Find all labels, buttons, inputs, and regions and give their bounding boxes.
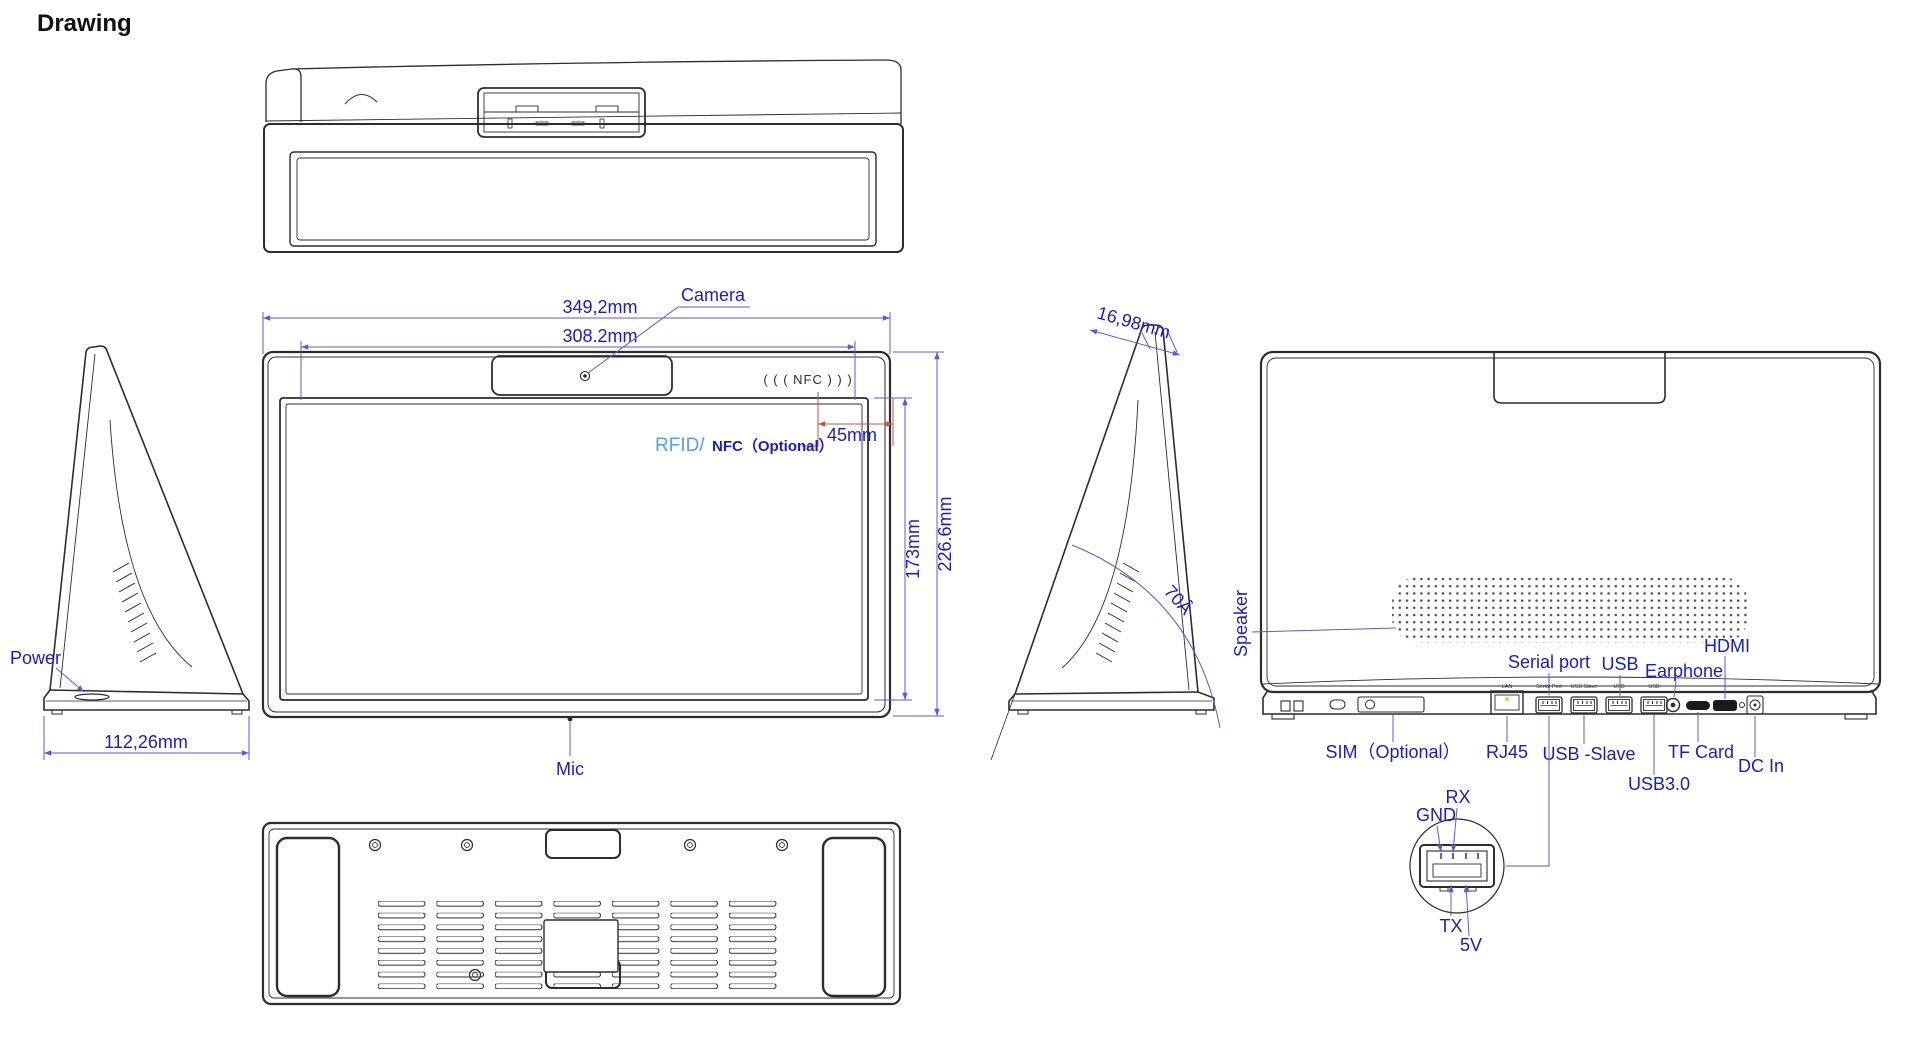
- dim-base-depth: 112,26mm: [44, 716, 249, 760]
- foot-pad-left: [277, 838, 339, 996]
- cable-bump: [345, 94, 377, 104]
- tx-label: TX: [1439, 916, 1462, 936]
- thickness-label: 16,98mm: [1095, 303, 1173, 343]
- svg-text:173mm: 173mm: [903, 519, 923, 579]
- power-label: Power: [10, 648, 61, 668]
- back-bottom-curve: [1263, 677, 1878, 684]
- right-stand-curve: [1062, 400, 1138, 668]
- mount-hole-1: [1281, 701, 1290, 711]
- left-inner-line: [60, 354, 95, 688]
- printed-usb-slave: USB Slave: [1571, 684, 1598, 690]
- serial-pin-detail: RX GND TX 5V: [1410, 787, 1504, 955]
- front-view: ( ( ( NFC ) ) ) 349,2mm 308.2mm Camera: [263, 285, 955, 779]
- nfc-mark: ( ( ( NFC ) ) ): [763, 372, 852, 387]
- speaker-label: Speaker: [1231, 590, 1251, 657]
- right-front-edge: [1163, 330, 1198, 692]
- detail-circle: [1410, 819, 1504, 913]
- svg-text:308.2mm: 308.2mm: [562, 326, 637, 346]
- tf-card-label: TF Card: [1668, 742, 1734, 762]
- stand-back: [1494, 353, 1665, 403]
- front-outline-inner: [268, 357, 885, 712]
- earphone-label: Earphone: [1645, 661, 1723, 681]
- mic-callout: Mic: [556, 722, 584, 779]
- bottom-view: [263, 823, 900, 1004]
- right-back-edge: [1015, 325, 1163, 694]
- dc-in-label: DC In: [1738, 756, 1784, 776]
- usb-slave-port: [1571, 697, 1597, 713]
- right-side-view: 16,98mm 70Â: [991, 303, 1220, 760]
- serial-port-label: Serial port: [1508, 652, 1590, 672]
- sim-slot: [1358, 697, 1424, 712]
- port-strip: [1263, 690, 1876, 714]
- serial-connector: [1420, 845, 1494, 891]
- rj45-port: [1491, 691, 1523, 714]
- nfc-offset-label: 45mm: [827, 425, 877, 445]
- handle-slot-top: [546, 830, 620, 858]
- reset-hole: [1740, 703, 1745, 708]
- power-button: [75, 694, 109, 700]
- usb3-port: [1641, 697, 1667, 713]
- tf-card-slot: [1686, 701, 1710, 710]
- hdmi-port: [1713, 700, 1737, 711]
- dim-screen-height: 173mm: [874, 398, 923, 700]
- front-outline: [263, 352, 890, 717]
- svg-text:226.6mm: 226.6mm: [935, 496, 955, 571]
- printed-lan: LAN: [1502, 684, 1513, 690]
- mount-hole-2: [1294, 701, 1303, 711]
- tilt-angle: 70Â: [1072, 545, 1220, 728]
- foot-pad-right: [823, 838, 885, 996]
- angle-extension-line: [991, 694, 1015, 760]
- back-view: LAN Serial Port USB Slave USB USB Speake…: [1231, 352, 1880, 866]
- mic-label: Mic: [556, 759, 584, 779]
- vesa-plate: [544, 920, 618, 972]
- drawing-sheet: Drawing: [0, 0, 1920, 1042]
- drawing-canvas: ( ( ( NFC ) ) ) 349,2mm 308.2mm Camera: [0, 0, 1920, 1042]
- hdmi-label: HDMI: [1704, 636, 1750, 656]
- usb-slave-label: USB -Slave: [1542, 744, 1635, 764]
- top-camera-module: [478, 88, 645, 137]
- power-callout: Power: [10, 648, 84, 692]
- rj45-label: RJ45: [1486, 742, 1528, 762]
- dc-in-jack: [1747, 696, 1763, 714]
- camera-module: [492, 356, 672, 395]
- speaker-callout: Speaker: [1231, 590, 1396, 657]
- camera-label: Camera: [681, 285, 746, 305]
- top-view-body: [264, 124, 903, 252]
- serial-detail-leader: [1506, 716, 1549, 866]
- left-stand-curve: [110, 420, 192, 667]
- rx-label: RX: [1445, 787, 1470, 807]
- side-speaker-hatch: [113, 563, 156, 662]
- svg-text:112,26mm: 112,26mm: [104, 732, 188, 752]
- rfid-nfc-callout: 45mm RFID/ NFC（Optional）: [655, 392, 893, 456]
- left-back-edge: [86, 346, 243, 694]
- tilt-angle-arc: [1072, 545, 1220, 728]
- page-title: Drawing: [37, 10, 132, 38]
- rfid-label: RFID/: [655, 435, 705, 456]
- top-view-knob: [266, 69, 301, 122]
- top-view-fold-line: [266, 113, 901, 121]
- usb30-label: USB3.0: [1628, 774, 1690, 794]
- left-side-view: Power 112,26mm: [10, 346, 249, 760]
- serial-usb-port: [1536, 697, 1562, 713]
- right-inner-line: [1155, 332, 1189, 690]
- left-front-edge: [50, 352, 86, 690]
- usb-label: USB: [1601, 654, 1638, 674]
- dim-screen-width: 308.2mm: [301, 326, 855, 400]
- side-speaker-hatch-right: [1096, 563, 1139, 662]
- printed-usb1: USB: [1613, 684, 1625, 690]
- kensington-slot: [1330, 700, 1345, 709]
- usb-port: [1606, 697, 1632, 713]
- gnd-label: GND: [1416, 805, 1456, 825]
- rfid-optional-label: NFC（Optional）: [712, 437, 834, 455]
- earphone-jack: [1667, 699, 1680, 712]
- top-view: [264, 60, 903, 252]
- top-view-screen-outer: [290, 152, 876, 246]
- svg-text:349,2mm: 349,2mm: [562, 297, 637, 317]
- 5v-label: 5V: [1460, 935, 1482, 955]
- mic-dot: [568, 717, 573, 722]
- speaker-grille: [1392, 577, 1748, 643]
- left-base: [44, 690, 249, 710]
- printed-usb2: USB: [1648, 684, 1660, 690]
- sim-label: SIM（Optional）: [1325, 742, 1460, 762]
- top-view-screen-inner: [297, 158, 869, 240]
- port-labels-bottom: SIM（Optional） RJ45 USB -Slave TF Card DC…: [1325, 712, 1784, 794]
